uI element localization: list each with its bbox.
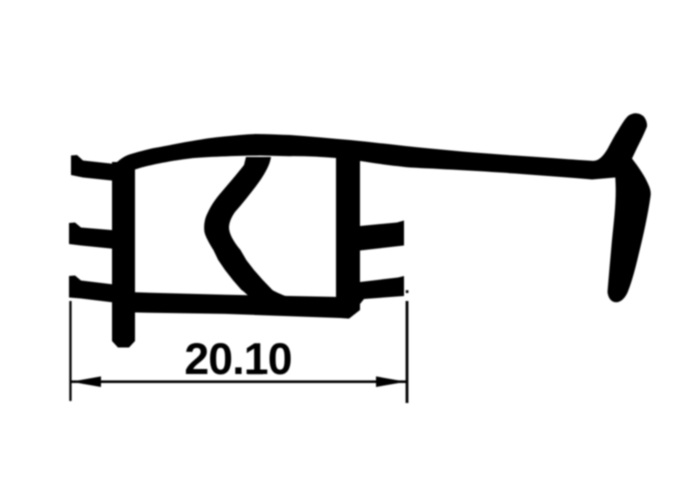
svg-text:20.10: 20.10: [184, 335, 291, 384]
